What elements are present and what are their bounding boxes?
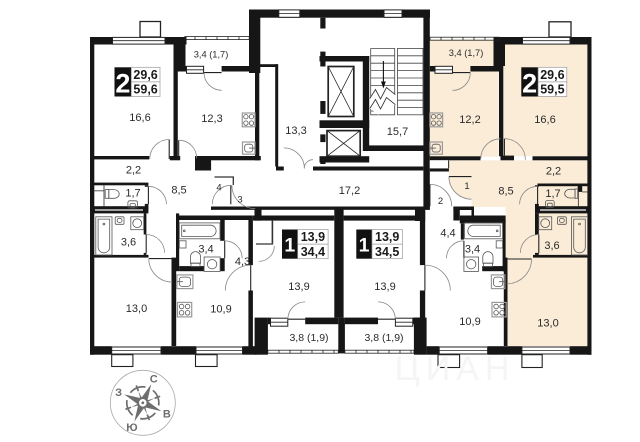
svg-text:С: С xyxy=(150,374,158,386)
svg-text:13,9: 13,9 xyxy=(288,281,309,293)
svg-text:2,2: 2,2 xyxy=(546,166,561,178)
svg-text:1,7: 1,7 xyxy=(125,188,140,200)
svg-text:З: З xyxy=(115,387,122,399)
svg-text:3,4: 3,4 xyxy=(198,244,213,256)
svg-text:29,6: 29,6 xyxy=(133,68,157,82)
svg-text:17,2: 17,2 xyxy=(339,185,360,197)
svg-text:Ю: Ю xyxy=(126,422,137,434)
svg-text:15,7: 15,7 xyxy=(387,126,408,138)
svg-text:4,3: 4,3 xyxy=(235,256,250,268)
svg-text:3,4 (1,7): 3,4 (1,7) xyxy=(194,50,229,60)
svg-text:3,8 (1,9): 3,8 (1,9) xyxy=(289,332,328,344)
svg-text:2: 2 xyxy=(438,196,443,207)
svg-text:4,4: 4,4 xyxy=(440,228,455,240)
svg-text:2: 2 xyxy=(115,68,130,98)
svg-text:34,4: 34,4 xyxy=(301,245,325,259)
svg-text:1,7: 1,7 xyxy=(545,188,560,200)
svg-text:59,6: 59,6 xyxy=(133,83,157,97)
svg-text:13,3: 13,3 xyxy=(285,125,306,137)
svg-text:4: 4 xyxy=(216,183,221,194)
svg-text:3: 3 xyxy=(237,195,242,206)
svg-text:13,9: 13,9 xyxy=(374,281,395,293)
svg-text:ЦИАН: ЦИАН xyxy=(395,350,516,388)
svg-text:2: 2 xyxy=(522,68,537,98)
svg-text:13,0: 13,0 xyxy=(126,303,147,315)
svg-text:1: 1 xyxy=(284,235,295,257)
svg-text:В: В xyxy=(163,409,171,421)
svg-text:1: 1 xyxy=(464,181,469,192)
svg-text:3,6: 3,6 xyxy=(544,240,559,252)
svg-text:12,3: 12,3 xyxy=(201,113,222,125)
svg-text:16,6: 16,6 xyxy=(534,114,555,126)
svg-text:3,6: 3,6 xyxy=(121,237,136,249)
svg-text:3,4 (1,7): 3,4 (1,7) xyxy=(449,48,484,58)
svg-text:8,5: 8,5 xyxy=(498,186,513,198)
svg-text:59,5: 59,5 xyxy=(540,83,564,97)
svg-text:34,5: 34,5 xyxy=(375,245,399,259)
svg-text:10,9: 10,9 xyxy=(210,304,231,316)
svg-text:13,0: 13,0 xyxy=(537,318,558,330)
svg-text:1: 1 xyxy=(359,235,370,257)
svg-text:13,9: 13,9 xyxy=(301,230,325,244)
svg-text:3,4: 3,4 xyxy=(465,244,480,256)
svg-text:16,6: 16,6 xyxy=(129,112,150,124)
svg-text:29,6: 29,6 xyxy=(540,68,564,82)
svg-text:13,9: 13,9 xyxy=(375,230,399,244)
svg-text:8,5: 8,5 xyxy=(171,185,186,197)
svg-text:12,2: 12,2 xyxy=(459,114,480,126)
svg-text:3,8 (1,9): 3,8 (1,9) xyxy=(364,332,403,344)
svg-text:10,9: 10,9 xyxy=(459,316,480,328)
svg-text:2,2: 2,2 xyxy=(126,165,141,177)
